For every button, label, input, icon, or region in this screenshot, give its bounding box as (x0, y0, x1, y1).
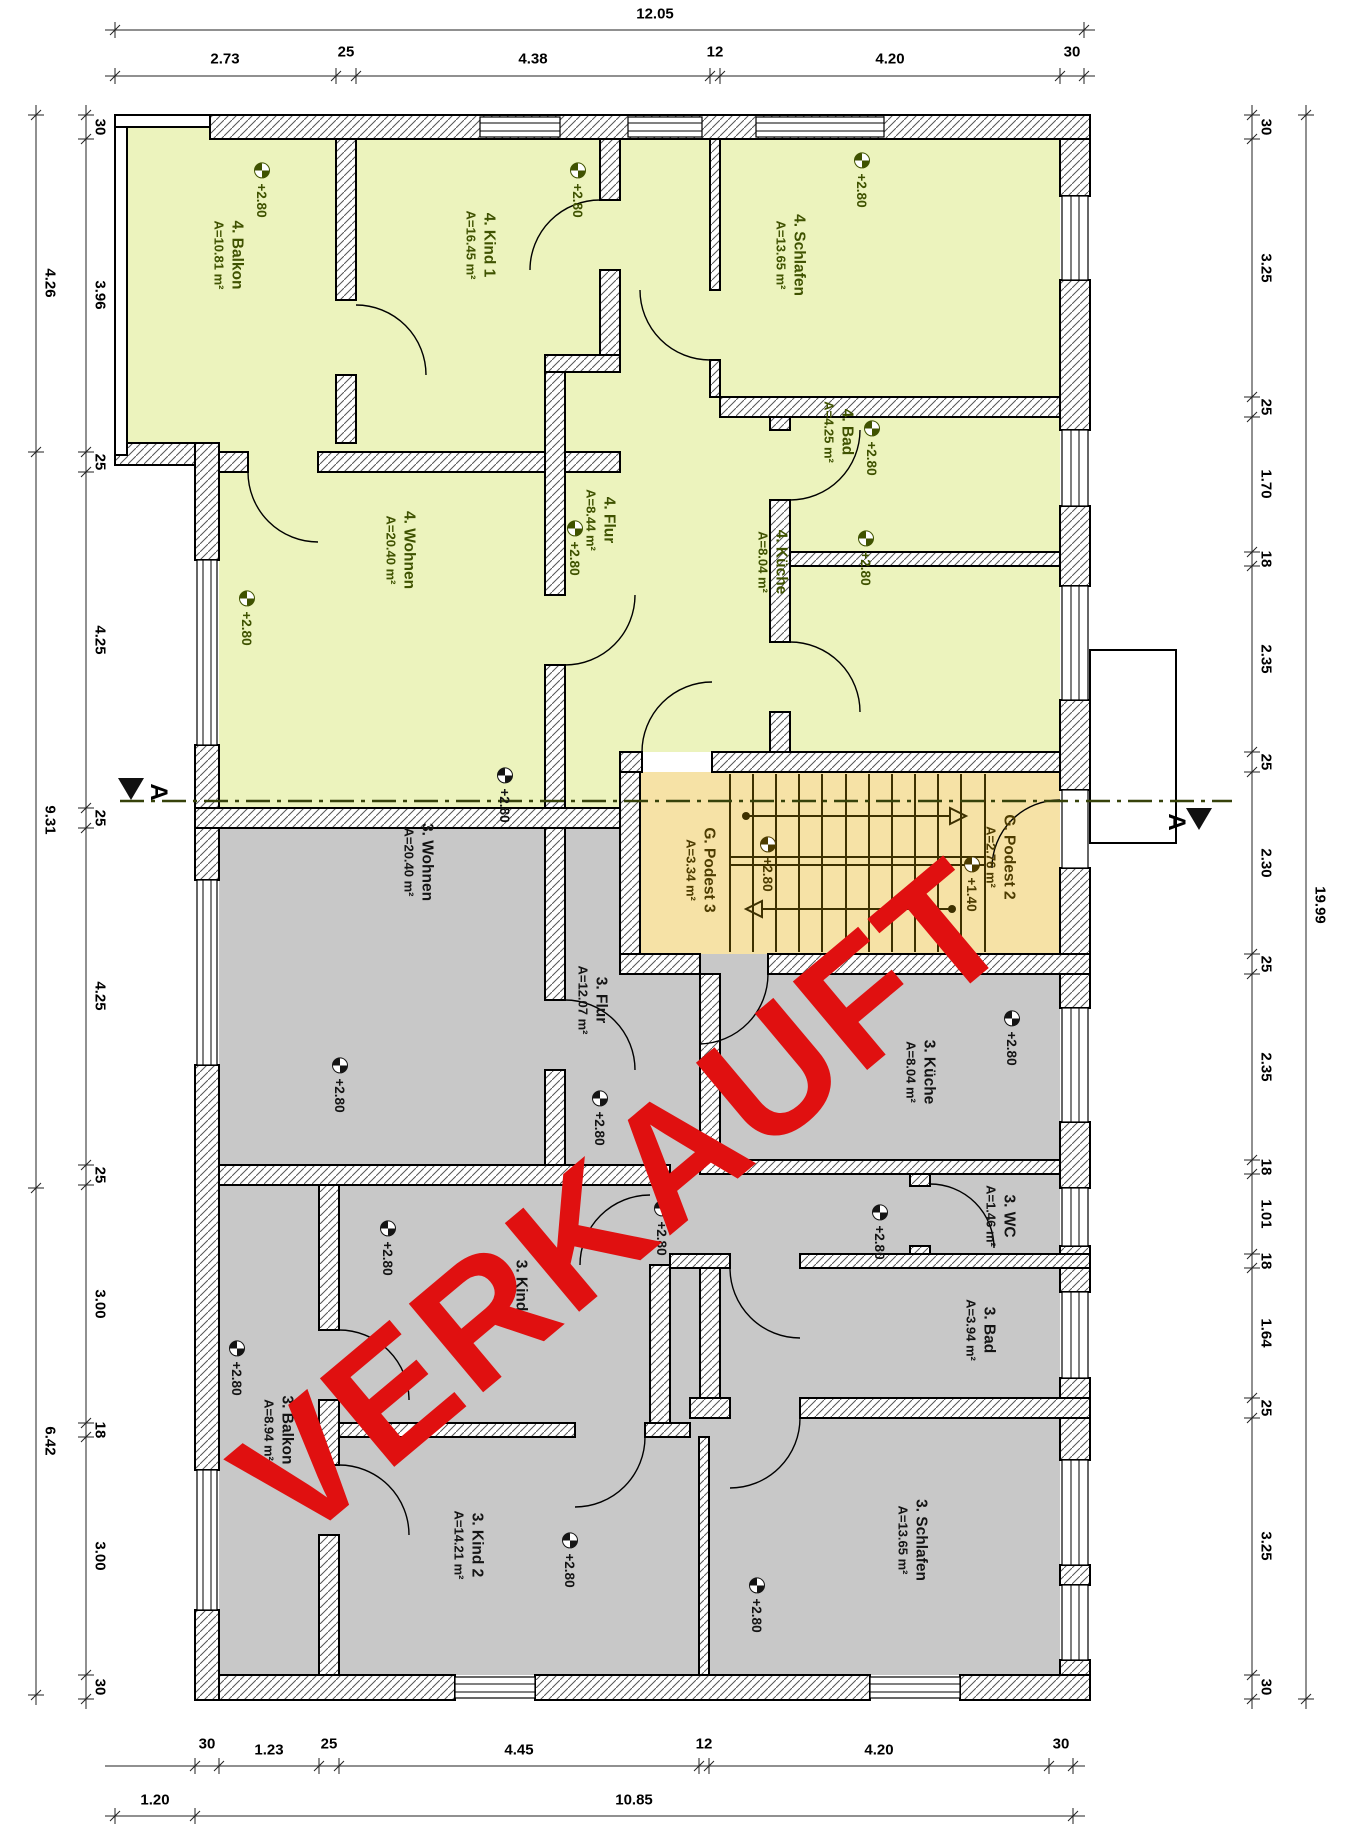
room-area: A=3.94 m² (961, 1299, 978, 1361)
level-value: +2.80 (761, 857, 776, 891)
level-symbol-icon (570, 162, 586, 178)
room-label-kind1-4: 4. Kind 1 A=16.45 m² (461, 210, 498, 279)
level-marker: +2.80 (1004, 1010, 1020, 1065)
level-symbol-icon (239, 590, 255, 606)
room-area: A=13.65 m² (893, 1499, 910, 1581)
apartment-4-fill (127, 127, 1060, 828)
dim-right-inner: 2.35 (1259, 644, 1274, 673)
dim-top-seg: 4.20 (873, 52, 906, 67)
dim-right-inner: 3.25 (1259, 1531, 1274, 1560)
room-name: 3. Flur (590, 965, 610, 1034)
level-value: +2.80 (498, 788, 513, 822)
room-area: A=20.40 m² (381, 511, 398, 589)
room-label-schlafen3: 3. Schlafen A=13.65 m² (893, 1499, 930, 1581)
room-label-kueche4: 4. Küche A=8.04 m² (753, 530, 790, 595)
room-label-bad4: 4. Bad A=4.25 m² (819, 401, 856, 463)
level-symbol-icon (854, 152, 870, 168)
level-symbol-icon (332, 1057, 348, 1073)
level-marker: +2.80 (858, 530, 874, 585)
dim-left-inner: 3.96 (93, 280, 108, 309)
level-marker: +2.80 (760, 836, 776, 891)
room-area: A=8.04 m² (753, 530, 770, 595)
dim-left-outer: 6.42 (43, 1426, 58, 1455)
dim-bottom-seg: 4.20 (862, 1743, 895, 1758)
dim-top-seg: 2.73 (208, 52, 241, 67)
floor-plan-drawing (0, 0, 1355, 1838)
level-marker: +2.80 (562, 1532, 578, 1587)
dim-left-inner: 18 (93, 1422, 108, 1439)
room-area: A=3.34 m² (681, 827, 698, 912)
room-area: A=1.46 m² (981, 1185, 998, 1247)
dim-right-inner: 1.64 (1259, 1318, 1274, 1347)
room-name: 4. Flur (598, 489, 618, 551)
dim-top-seg: 25 (336, 45, 357, 60)
level-value: +2.80 (333, 1078, 348, 1112)
level-value: +2.80 (230, 1361, 245, 1395)
room-label-bad3: 3. Bad A=3.94 m² (961, 1299, 998, 1361)
level-symbol-icon (864, 420, 880, 436)
dim-right-inner: 30 (1259, 1679, 1274, 1696)
dim-left-inner: 25 (93, 1167, 108, 1184)
level-marker: +2.80 (567, 520, 583, 575)
dim-right-inner: 18 (1259, 1253, 1274, 1270)
level-symbol-icon (567, 520, 583, 536)
level-value: +2.80 (568, 541, 583, 575)
dim-bottom-seg: 25 (319, 1737, 340, 1752)
level-symbol-icon (760, 836, 776, 852)
level-marker: +2.80 (864, 420, 880, 475)
dim-right-inner: 30 (1259, 119, 1274, 136)
dim-bottom-seg: 30 (197, 1737, 218, 1752)
room-area: A=8.44 m² (581, 489, 598, 551)
dim-right-inner: 25 (1259, 956, 1274, 973)
room-label-wohnen4: 4. Wohnen A=20.40 m² (381, 511, 418, 589)
room-label-podest3: G. Podest 3 A=3.34 m² (681, 827, 718, 912)
dim-left-inner: 30 (93, 1679, 108, 1696)
room-area: A=20.40 m² (399, 823, 416, 901)
level-symbol-icon (872, 1204, 888, 1220)
dim-right-inner: 3.25 (1259, 253, 1274, 282)
level-symbol-icon (858, 530, 874, 546)
level-marker: +2.80 (239, 590, 255, 645)
dim-right-inner: 1.01 (1259, 1199, 1274, 1228)
room-label-balkon4: 4. Balkon A=10.81 m² (209, 220, 246, 289)
room-area: A=14.21 m² (449, 1510, 466, 1579)
room-name: 4. Küche (770, 530, 790, 595)
level-symbol-icon (562, 1532, 578, 1548)
dim-right-inner: 18 (1259, 1159, 1274, 1176)
dim-bottom-seg: 1.23 (252, 1743, 285, 1758)
dim-bottom-seg: 4.45 (502, 1743, 535, 1758)
level-symbol-icon (254, 162, 270, 178)
dim-right-total: 19.99 (1313, 886, 1328, 924)
floor-plan: 12.05 2.73 25 4.38 12 4.20 30 30 1.23 25… (0, 0, 1355, 1838)
level-symbol-icon (229, 1340, 245, 1356)
dim-left-inner: 30 (93, 119, 108, 136)
dim-left-outer: 4.26 (43, 268, 58, 297)
dim-bottom-total: 1.20 (138, 1793, 171, 1808)
room-name: 4. Balkon (226, 220, 246, 289)
room-label-podest2: G. Podest 2 A=2.76 m² (981, 814, 1018, 899)
room-name: G. Podest 2 (998, 814, 1018, 899)
level-value: +2.80 (750, 1598, 765, 1632)
level-marker: +2.80 (332, 1057, 348, 1112)
level-value: +2.80 (855, 173, 870, 207)
room-name: 3. Bad (978, 1299, 998, 1361)
dim-right-inner: 18 (1259, 551, 1274, 568)
dim-left-inner: 25 (93, 810, 108, 827)
level-value: +2.80 (571, 183, 586, 217)
level-symbol-icon (749, 1577, 765, 1593)
room-label-flur3: 3. Flur A=12.07 m² (573, 965, 610, 1034)
dim-left-inner: 3.00 (93, 1541, 108, 1570)
level-marker: +2.80 (749, 1577, 765, 1632)
level-value: +2.80 (859, 551, 874, 585)
level-marker: +2.80 (497, 767, 513, 822)
level-symbol-icon (380, 1220, 396, 1236)
section-marker-left (118, 778, 144, 800)
room-area: A=12.07 m² (573, 965, 590, 1034)
room-name: 4. Kind 1 (478, 210, 498, 279)
room-area: A=2.76 m² (981, 814, 998, 899)
level-value: +2.80 (873, 1225, 888, 1259)
dim-top-total: 12.05 (634, 7, 676, 22)
room-area: A=13.65 m² (771, 214, 788, 296)
dim-top-seg: 12 (705, 45, 726, 60)
dim-right-inner: 25 (1259, 754, 1274, 771)
room-label-kind2-3: 3. Kind 2 A=14.21 m² (449, 1510, 486, 1579)
room-area: A=10.81 m² (209, 220, 226, 289)
level-marker: +2.80 (854, 152, 870, 207)
dim-right-inner: 2.30 (1259, 848, 1274, 877)
level-marker: +2.80 (872, 1204, 888, 1259)
room-name: G. Podest 3 (698, 827, 718, 912)
level-symbol-icon (497, 767, 513, 783)
dim-right-inner: 25 (1259, 1400, 1274, 1417)
dim-left-inner: 3.00 (93, 1289, 108, 1318)
level-value: +2.80 (1005, 1031, 1020, 1065)
dim-right-inner: 2.35 (1259, 1052, 1274, 1081)
dim-right-inner: 1.70 (1259, 469, 1274, 498)
room-name: 4. Schlafen (788, 214, 808, 296)
dim-top-seg: 30 (1062, 45, 1083, 60)
dim-left-inner: 4.25 (93, 981, 108, 1010)
room-area: A=4.25 m² (819, 401, 836, 463)
dim-bottom-total: 10.85 (613, 1793, 655, 1808)
level-value: +2.80 (240, 611, 255, 645)
section-label-left: A (144, 783, 172, 800)
dim-right-inner: 25 (1259, 399, 1274, 416)
level-marker: +2.80 (570, 162, 586, 217)
section-label-right: A (1162, 813, 1190, 830)
dim-left-outer: 9.31 (43, 805, 58, 834)
dim-bottom-seg: 30 (1051, 1737, 1072, 1752)
room-label-schlafen4: 4. Schlafen A=13.65 m² (771, 214, 808, 296)
level-value: +2.80 (865, 441, 880, 475)
room-area: A=16.45 m² (461, 210, 478, 279)
level-value: +2.80 (563, 1553, 578, 1587)
room-name: 3. Schlafen (910, 1499, 930, 1581)
room-label-wohnen3: 3. Wohnen A=20.40 m² (399, 823, 436, 901)
room-name: 4. Bad (836, 401, 856, 463)
level-marker: +2.80 (229, 1340, 245, 1395)
room-name: 3. WC (998, 1185, 1018, 1247)
dim-left-inner: 4.25 (93, 625, 108, 654)
room-label-flur4: 4. Flur A=8.44 m² (581, 489, 618, 551)
level-marker: +2.80 (254, 162, 270, 217)
level-symbol-icon (964, 856, 980, 872)
dim-top-seg: 4.38 (516, 52, 549, 67)
room-name: 3. Kind 2 (466, 1510, 486, 1579)
dim-bottom-seg: 12 (694, 1737, 715, 1752)
dim-left-inner: 25 (93, 454, 108, 471)
level-symbol-icon (1004, 1010, 1020, 1026)
room-label-wc3: 3. WC A=1.46 m² (981, 1185, 1018, 1247)
room-name: 4. Wohnen (398, 511, 418, 589)
level-value: +2.80 (255, 183, 270, 217)
room-name: 3. Wohnen (416, 823, 436, 901)
